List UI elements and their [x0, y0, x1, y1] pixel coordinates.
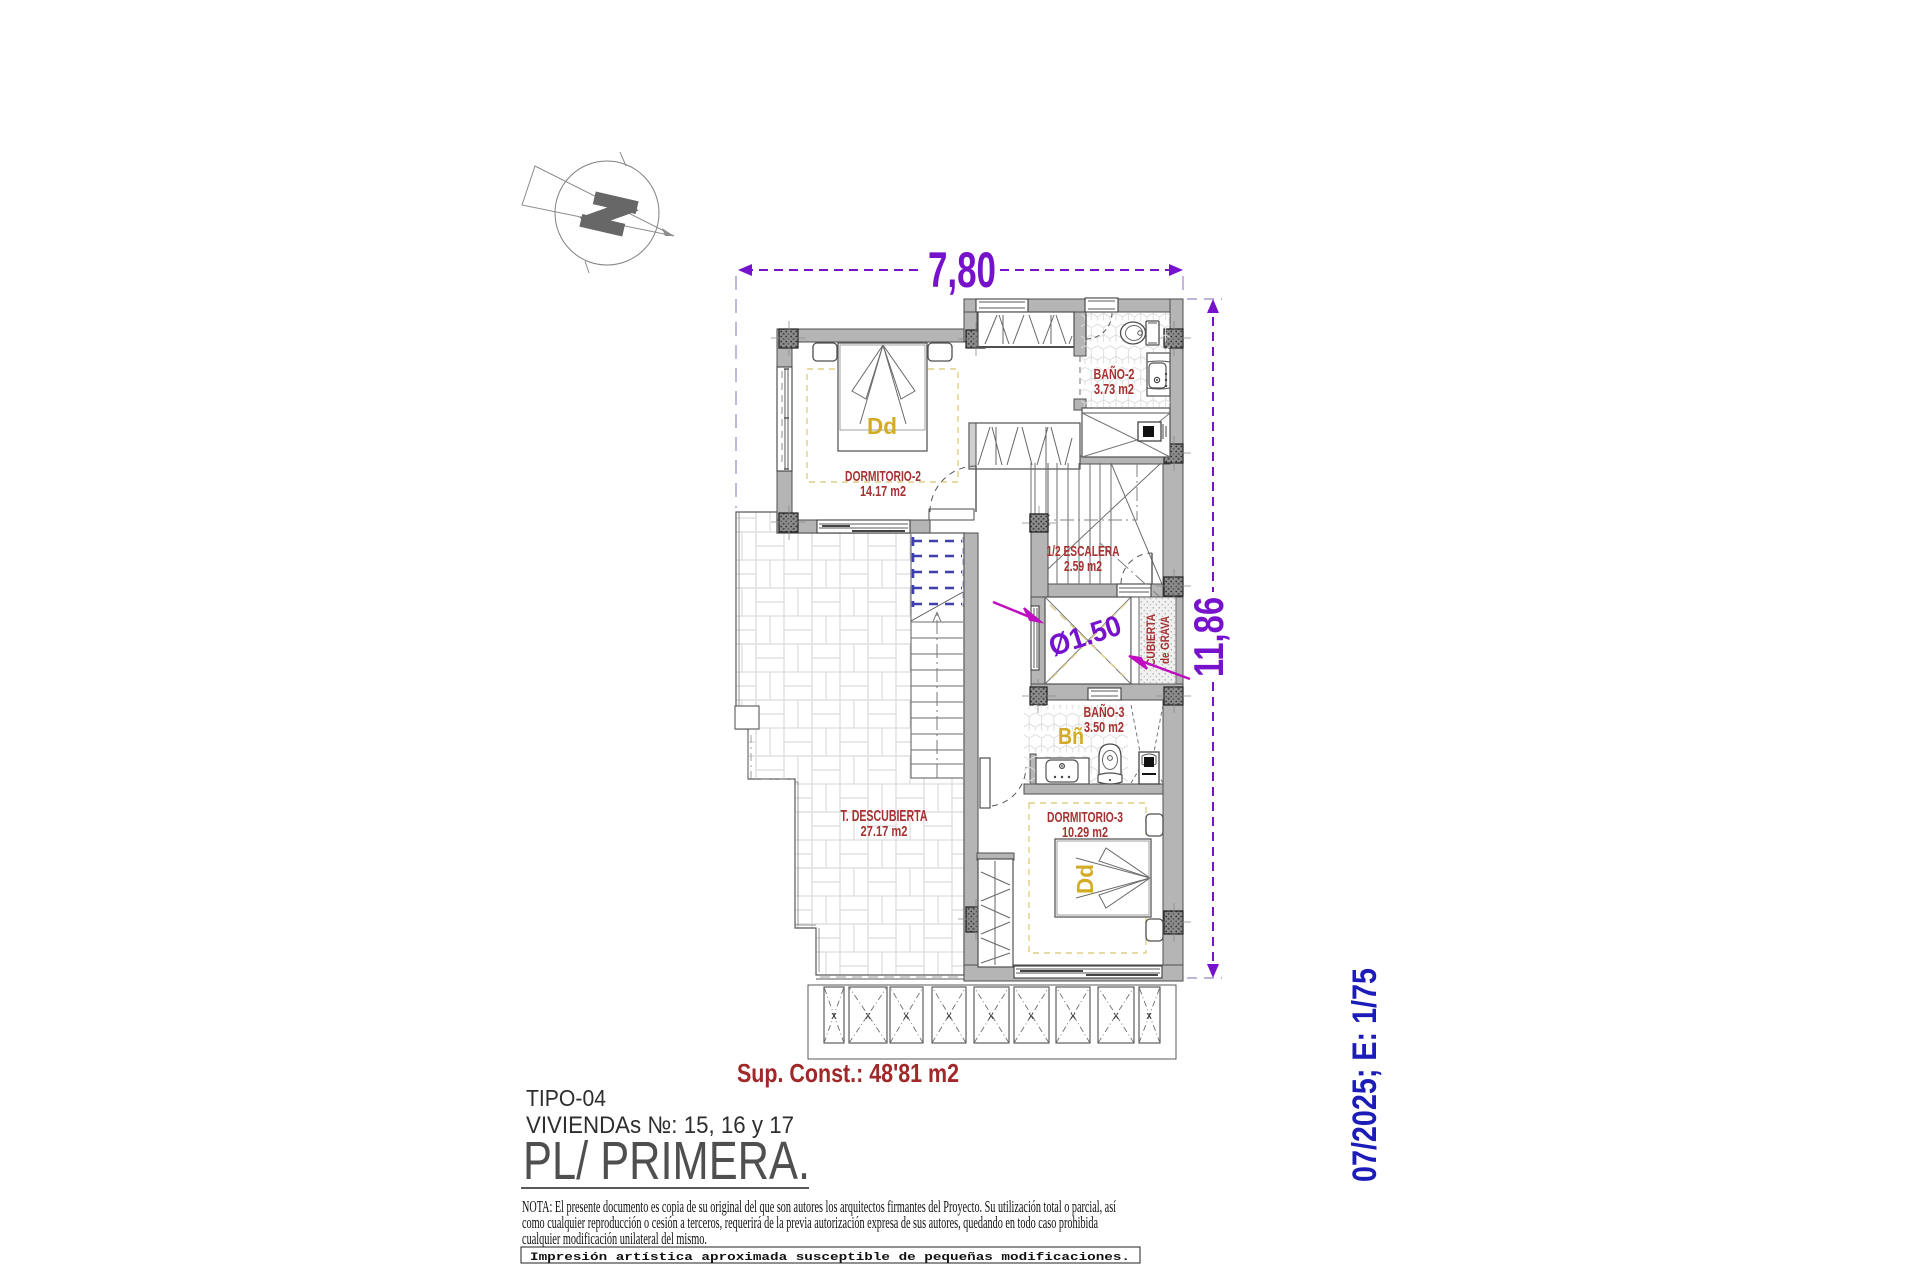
- svg-text:cualquier modificación unilate: cualquier modificación unilateral del mi…: [522, 1229, 707, 1248]
- svg-text:11,86: 11,86: [1185, 597, 1232, 677]
- svg-text:PL/ PRIMERA.: PL/ PRIMERA.: [523, 1131, 810, 1191]
- svg-text:x: x: [946, 1010, 952, 1022]
- svg-text:27.17 m2: 27.17 m2: [861, 823, 908, 840]
- svg-text:x: x: [831, 1010, 837, 1022]
- svg-text:10.29 m2: 10.29 m2: [1062, 824, 1108, 841]
- svg-text:07/2025; E: 1/75: 07/2025; E: 1/75: [1346, 968, 1384, 1182]
- svg-text:x: x: [865, 1010, 871, 1022]
- svg-text:x: x: [1113, 1010, 1119, 1022]
- svg-text:7,80: 7,80: [928, 242, 996, 298]
- svg-text:3.50 m2: 3.50 m2: [1084, 719, 1124, 736]
- svg-text:CUBIERTA: CUBIERTA: [1144, 614, 1158, 666]
- svg-text:Bñ: Bñ: [1058, 723, 1084, 749]
- svg-text:x: x: [1070, 1010, 1076, 1022]
- svg-text:14.17 m2: 14.17 m2: [860, 483, 906, 500]
- svg-text:de GRAVA: de GRAVA: [1158, 616, 1172, 664]
- svg-text:x: x: [988, 1010, 994, 1022]
- svg-text:3.73 m2: 3.73 m2: [1094, 381, 1134, 398]
- svg-text:2.59 m2: 2.59 m2: [1064, 558, 1102, 575]
- svg-text:x: x: [903, 1010, 909, 1022]
- svg-text:Sup. Const.: 48'81 m2: Sup. Const.: 48'81 m2: [737, 1058, 959, 1088]
- svg-text:x: x: [1028, 1010, 1034, 1022]
- svg-text:x: x: [1146, 1010, 1152, 1022]
- svg-text:Dd: Dd: [1072, 864, 1098, 894]
- svg-text:Dd: Dd: [867, 413, 897, 439]
- svg-text:TIPO-04: TIPO-04: [526, 1085, 606, 1111]
- svg-text:Impresión artística aproxima: Impresión artística aproximada susceptib…: [530, 1252, 1130, 1264]
